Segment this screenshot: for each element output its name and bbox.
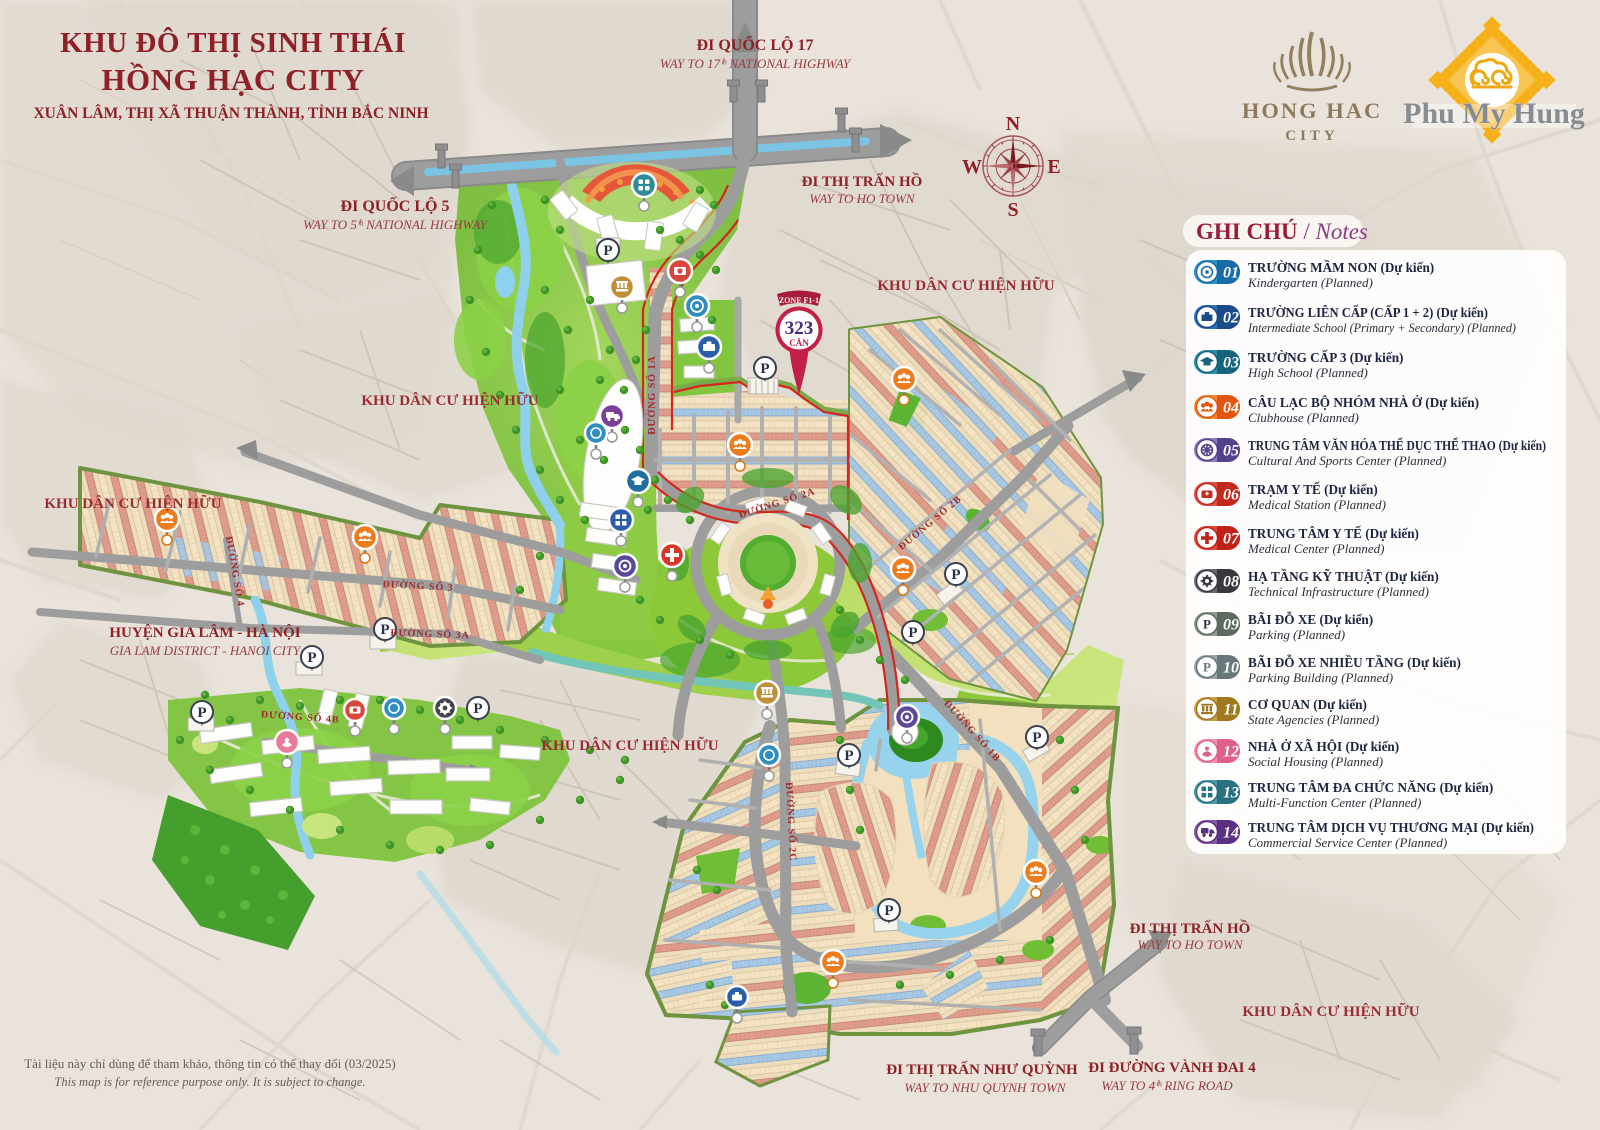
svg-text:TRUNG TÂM Y TẾ (Dự kiến): TRUNG TÂM Y TẾ (Dự kiến)	[1248, 526, 1419, 541]
svg-text:09: 09	[1223, 617, 1239, 634]
svg-text:WAY TO HO TOWN: WAY TO HO TOWN	[1137, 937, 1243, 952]
svg-text:ĐI THỊ TRẤN HỒ: ĐI THỊ TRẤN HỒ	[1130, 919, 1251, 937]
svg-text:10: 10	[1223, 660, 1239, 677]
svg-text:Technical Infrastructure (Plan: Technical Infrastructure (Planned)	[1248, 584, 1429, 599]
svg-text:KHU DÂN CƯ HIỆN HỮU: KHU DÂN CƯ HIỆN HỮU	[877, 276, 1054, 294]
svg-text:BÃI ĐỖ XE NHIỀU TẦNG (Dự kiến): BÃI ĐỖ XE NHIỀU TẦNG (Dự kiến)	[1248, 655, 1461, 670]
svg-text:Medical Center (Planned): Medical Center (Planned)	[1247, 541, 1384, 556]
svg-text:07: 07	[1223, 531, 1240, 548]
svg-text:ĐI THỊ TRẤN HỒ: ĐI THỊ TRẤN HỒ	[802, 172, 923, 190]
svg-text:Parking Building (Planned): Parking Building (Planned)	[1247, 670, 1393, 685]
svg-text:NHÀ Ở XÃ HỘI (Dự kiến): NHÀ Ở XÃ HỘI (Dự kiến)	[1248, 739, 1399, 754]
svg-text:W: W	[962, 156, 982, 178]
svg-text:S: S	[1007, 199, 1018, 221]
svg-text:CĂN: CĂN	[789, 338, 809, 348]
svg-text:BÃI ĐỖ XE (Dự kiến): BÃI ĐỖ XE (Dự kiến)	[1248, 612, 1373, 627]
svg-text:E: E	[1047, 156, 1060, 178]
svg-text:P: P	[1203, 660, 1211, 675]
svg-text:11: 11	[1223, 702, 1238, 719]
svg-text:KHU ĐÔ THỊ SINH THÁI: KHU ĐÔ THỊ SINH THÁI	[60, 26, 406, 59]
svg-text:Social Housing (Planned): Social Housing (Planned)	[1248, 754, 1383, 769]
svg-text:ĐƯỜNG SỐ 1A: ĐƯỜNG SỐ 1A	[645, 355, 658, 435]
svg-text:Kindergarten (Planned): Kindergarten (Planned)	[1247, 275, 1373, 290]
svg-text:TRƯỜNG MẦM NON (Dự kiến): TRƯỜNG MẦM NON (Dự kiến)	[1248, 260, 1434, 275]
svg-text:03: 03	[1223, 355, 1239, 372]
svg-text:TRẠM Y TẾ (Dự kiến): TRẠM Y TẾ (Dự kiến)	[1248, 482, 1378, 497]
svg-text:HUYỆN GIA LÂM - HÀ NỘI: HUYỆN GIA LÂM - HÀ NỘI	[109, 624, 300, 641]
svg-text:TRUNG TÂM VĂN HÓA THỂ DỤC THỂ: TRUNG TÂM VĂN HÓA THỂ DỤC THỂ THAO (Dự k…	[1248, 438, 1546, 453]
svg-text:WAY TO 5ⁱʰ NATIONAL HIGHWAY: WAY TO 5ⁱʰ NATIONAL HIGHWAY	[303, 217, 489, 232]
svg-text:WAY TO HO TOWN: WAY TO HO TOWN	[809, 191, 915, 206]
svg-text:WAY TO 4ⁱʰ RING ROAD: WAY TO 4ⁱʰ RING ROAD	[1101, 1078, 1233, 1093]
svg-text:TRƯỜNG LIÊN CẤP (CẤP 1 + 2) (D: TRƯỜNG LIÊN CẤP (CẤP 1 + 2) (Dự kiến)	[1248, 305, 1488, 320]
svg-text:ZONE F1-1: ZONE F1-1	[779, 296, 819, 305]
svg-text:CITY: CITY	[1285, 128, 1339, 144]
svg-text:P: P	[1203, 617, 1211, 632]
svg-text:TRUNG TÂM ĐA CHỨC NĂNG (Dự kiế: TRUNG TÂM ĐA CHỨC NĂNG (Dự kiến)	[1248, 780, 1493, 795]
svg-text:Phu My Hung: Phu My Hung	[1403, 97, 1585, 130]
svg-text:Multi-Function Center (Planned: Multi-Function Center (Planned)	[1247, 795, 1421, 810]
svg-text:12: 12	[1223, 744, 1239, 761]
svg-text:Medical Station (Planned): Medical Station (Planned)	[1247, 497, 1386, 512]
svg-text:TRƯỜNG CẤP 3 (Dự kiến): TRƯỜNG CẤP 3 (Dự kiến)	[1248, 350, 1403, 365]
svg-text:Clubhouse (Planned): Clubhouse (Planned)	[1248, 410, 1359, 425]
svg-text:GIA LAM DISTRICT - HANOI CITY: GIA LAM DISTRICT - HANOI CITY	[110, 643, 302, 658]
svg-text:KHU DÂN CƯ HIỆN HỮU: KHU DÂN CƯ HIỆN HỮU	[1242, 1002, 1419, 1020]
svg-text:Commercial Service Center (Pla: Commercial Service Center (Planned)	[1248, 835, 1447, 850]
svg-text:ĐI THỊ TRẤN NHƯ QUỲNH: ĐI THỊ TRẤN NHƯ QUỲNH	[886, 1061, 1078, 1078]
svg-text:KHU DÂN CƯ HIỆN HỮU: KHU DÂN CƯ HIỆN HỮU	[44, 494, 221, 512]
svg-text:06: 06	[1223, 487, 1239, 504]
svg-text:This map is for reference purp: This map is for reference purpose only. …	[54, 1075, 365, 1089]
svg-text:HONG HAC: HONG HAC	[1242, 98, 1382, 123]
svg-text:WAY TO 17ⁱʰ NATIONAL HIGHWAY: WAY TO 17ⁱʰ NATIONAL HIGHWAY	[660, 56, 852, 71]
svg-text:XUÂN LÂM, THỊ XÃ THUẬN THÀNH,: XUÂN LÂM, THỊ XÃ THUẬN THÀNH, TỈNH BẮC N…	[33, 104, 428, 122]
svg-text:HẠ TẦNG KỸ THUẬT (Dự kiến): HẠ TẦNG KỸ THUẬT (Dự kiến)	[1248, 569, 1439, 584]
svg-text:Intermediate School (Primary +: Intermediate School (Primary + Secondary…	[1247, 320, 1516, 335]
svg-text:GHI CHÚ / Notes: GHI CHÚ / Notes	[1196, 219, 1368, 244]
svg-text:04: 04	[1223, 400, 1239, 417]
svg-text:08: 08	[1223, 574, 1239, 591]
svg-text:KHU DÂN CƯ HIỆN HỮU: KHU DÂN CƯ HIỆN HỮU	[541, 736, 718, 754]
svg-text:323: 323	[785, 318, 814, 339]
svg-text:01: 01	[1223, 265, 1239, 282]
svg-text:14: 14	[1223, 825, 1239, 842]
svg-text:13: 13	[1223, 785, 1239, 802]
svg-text:High School (Planned): High School (Planned)	[1247, 365, 1368, 380]
svg-text:CƠ QUAN (Dự kiến): CƠ QUAN (Dự kiến)	[1248, 697, 1367, 712]
svg-text:N: N	[1006, 113, 1021, 135]
svg-text:TRUNG TÂM DỊCH VỤ THƯƠNG MẠI (: TRUNG TÂM DỊCH VỤ THƯƠNG MẠI (Dự kiến)	[1248, 820, 1534, 835]
svg-text:CÂU LẠC BỘ NHÓM NHÀ Ở (Dự kiến: CÂU LẠC BỘ NHÓM NHÀ Ở (Dự kiến)	[1248, 395, 1479, 410]
svg-text:KHU DÂN CƯ HIỆN HỮU: KHU DÂN CƯ HIỆN HỮU	[361, 391, 538, 409]
svg-text:ĐI QUỐC LỘ 5: ĐI QUỐC LỘ 5	[341, 195, 450, 215]
svg-text:WAY TO NHU QUYNH TOWN: WAY TO NHU QUYNH TOWN	[904, 1080, 1066, 1095]
svg-text:Tài liệu này chỉ dùng để tham: Tài liệu này chỉ dùng để tham khảo, thôn…	[24, 1056, 396, 1071]
svg-text:Cultural And Sports Center (Pl: Cultural And Sports Center (Planned)	[1248, 453, 1446, 468]
svg-text:State Agencies (Planned): State Agencies (Planned)	[1248, 712, 1379, 727]
svg-text:05: 05	[1223, 443, 1239, 460]
svg-text:ĐI ĐƯỜNG VÀNH ĐAI 4: ĐI ĐƯỜNG VÀNH ĐAI 4	[1088, 1059, 1256, 1076]
svg-text:Parking (Planned): Parking (Planned)	[1247, 627, 1345, 642]
svg-text:ĐI QUỐC LỘ 17: ĐI QUỐC LỘ 17	[697, 34, 814, 54]
svg-text:02: 02	[1223, 310, 1239, 327]
svg-text:HỒNG HẠC CITY: HỒNG HẠC CITY	[101, 61, 364, 97]
